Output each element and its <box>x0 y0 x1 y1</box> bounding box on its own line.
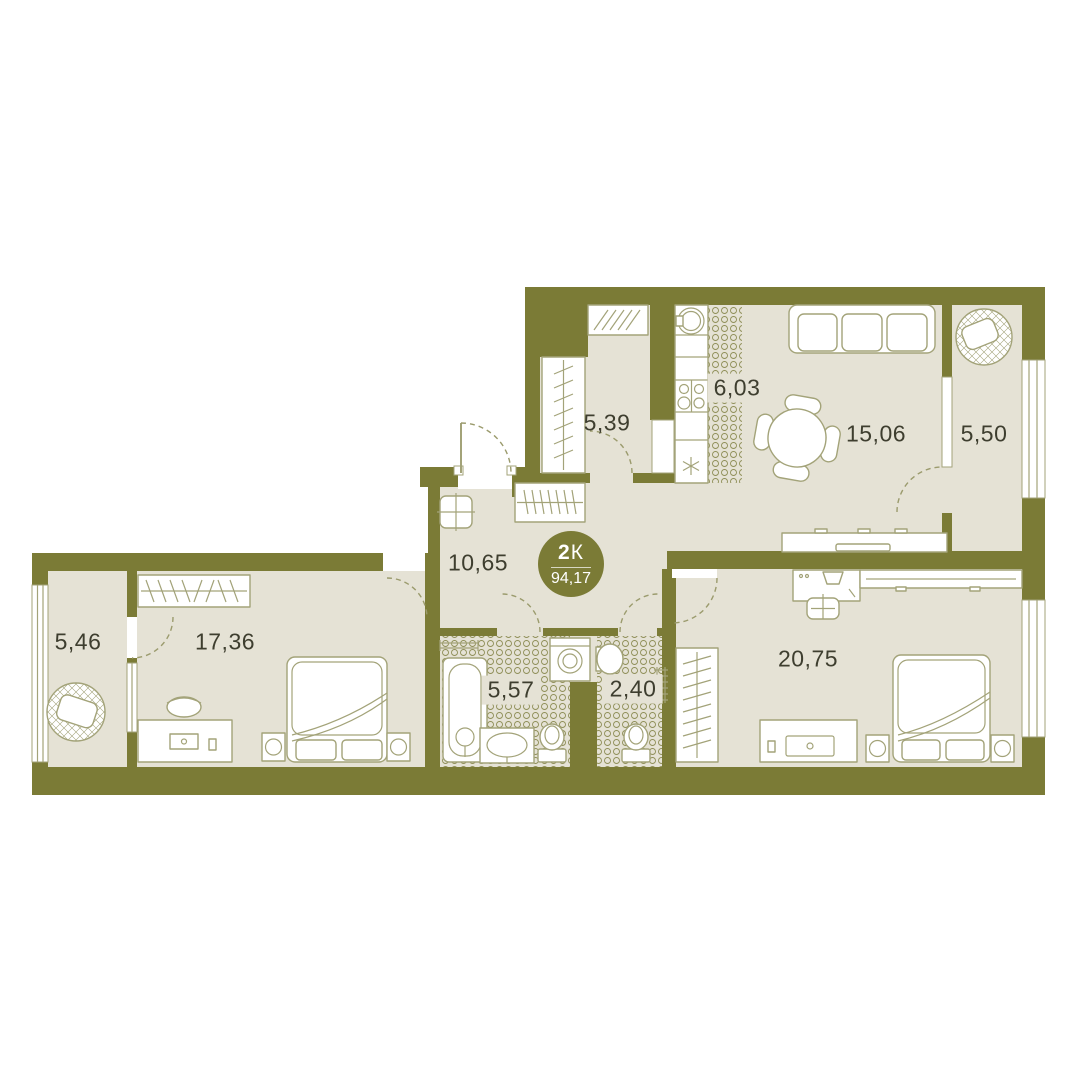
window-balcony-right <box>1022 360 1045 498</box>
door-toilet-opening <box>618 628 657 636</box>
room-label-bathroom: 5,57 <box>482 676 541 705</box>
room-label-balcony-right: 5,50 <box>961 421 1008 448</box>
desk-monitor <box>823 572 843 584</box>
room-label-bedroom-left: 17,36 <box>195 629 255 656</box>
door-balcony-left-opening <box>127 617 137 658</box>
door-bedroom-left-opening <box>383 553 425 571</box>
door-balcony-right-frame <box>942 377 952 467</box>
tv <box>836 544 890 551</box>
door-hallway-kitchen <box>652 420 674 473</box>
room-label-toilet: 2,40 <box>604 675 663 704</box>
wardrobe-shelf <box>588 305 648 335</box>
room-label-hallway: 5,39 <box>584 410 631 437</box>
badge-divider <box>551 567 591 568</box>
wc-sink <box>597 644 623 674</box>
window-bedroom-right <box>1022 600 1045 737</box>
floorplan-page: 5,39 6,03 15,06 5,50 10,65 5,46 17,36 5,… <box>0 0 1080 1080</box>
door-hallway-opening <box>590 473 633 483</box>
washing-machine <box>550 638 590 681</box>
toilet-tank <box>538 749 566 762</box>
door-bathroom-opening <box>497 628 543 636</box>
window-balcony-left <box>32 585 48 762</box>
apartment-type-label: 2К <box>558 542 584 563</box>
window-bedroom-left-balcony <box>127 663 137 732</box>
room-label-kitchen: 6,03 <box>708 374 767 403</box>
kitchen-faucet <box>676 316 683 326</box>
toilet-bowl <box>624 724 648 750</box>
sofa-cushion <box>798 314 837 351</box>
door-bedroom-right-opening <box>672 569 717 578</box>
room-label-corridor: 10,65 <box>448 550 508 577</box>
entrance-opening <box>458 465 512 489</box>
floorplan-drawing <box>0 0 1080 1080</box>
apartment-total-area: 94,17 <box>551 571 591 587</box>
balcony-right-furniture <box>956 309 1012 365</box>
room-label-bedroom-right: 20,75 <box>778 646 838 673</box>
apartment-type-badge: 2К 94,17 <box>538 531 604 597</box>
kitchen-furniture <box>675 305 708 483</box>
sofa-cushion <box>842 314 882 351</box>
room-label-balcony-left: 5,46 <box>55 629 102 656</box>
toilet-tank <box>622 749 650 762</box>
toilet-bowl <box>540 724 564 750</box>
balcony-left-furniture <box>47 683 105 741</box>
sofa-cushion <box>887 314 927 351</box>
room-label-living-room: 15,06 <box>846 421 906 448</box>
